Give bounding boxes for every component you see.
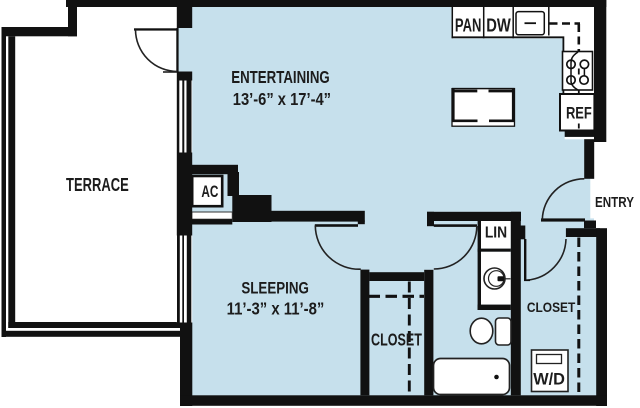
svg-text:SLEEPING: SLEEPING bbox=[241, 279, 308, 298]
svg-text:LIN: LIN bbox=[485, 224, 507, 242]
svg-text:W/D: W/D bbox=[533, 369, 565, 388]
svg-text:ENTERTAINING: ENTERTAINING bbox=[231, 68, 329, 87]
svg-text:AC: AC bbox=[201, 183, 218, 201]
svg-text:CLOSET: CLOSET bbox=[527, 300, 576, 315]
svg-text:PAN: PAN bbox=[455, 16, 482, 36]
svg-text:REF: REF bbox=[566, 105, 592, 123]
svg-text:11’-3” x 11’-8”: 11’-3” x 11’-8” bbox=[227, 300, 325, 319]
svg-text:TERRACE: TERRACE bbox=[66, 176, 129, 196]
svg-text:DW: DW bbox=[486, 15, 511, 36]
svg-text:CLOSET: CLOSET bbox=[371, 331, 423, 350]
svg-text:13’-6” x 17’-4”: 13’-6” x 17’-4” bbox=[233, 90, 331, 110]
svg-text:ENTRY: ENTRY bbox=[595, 193, 634, 210]
